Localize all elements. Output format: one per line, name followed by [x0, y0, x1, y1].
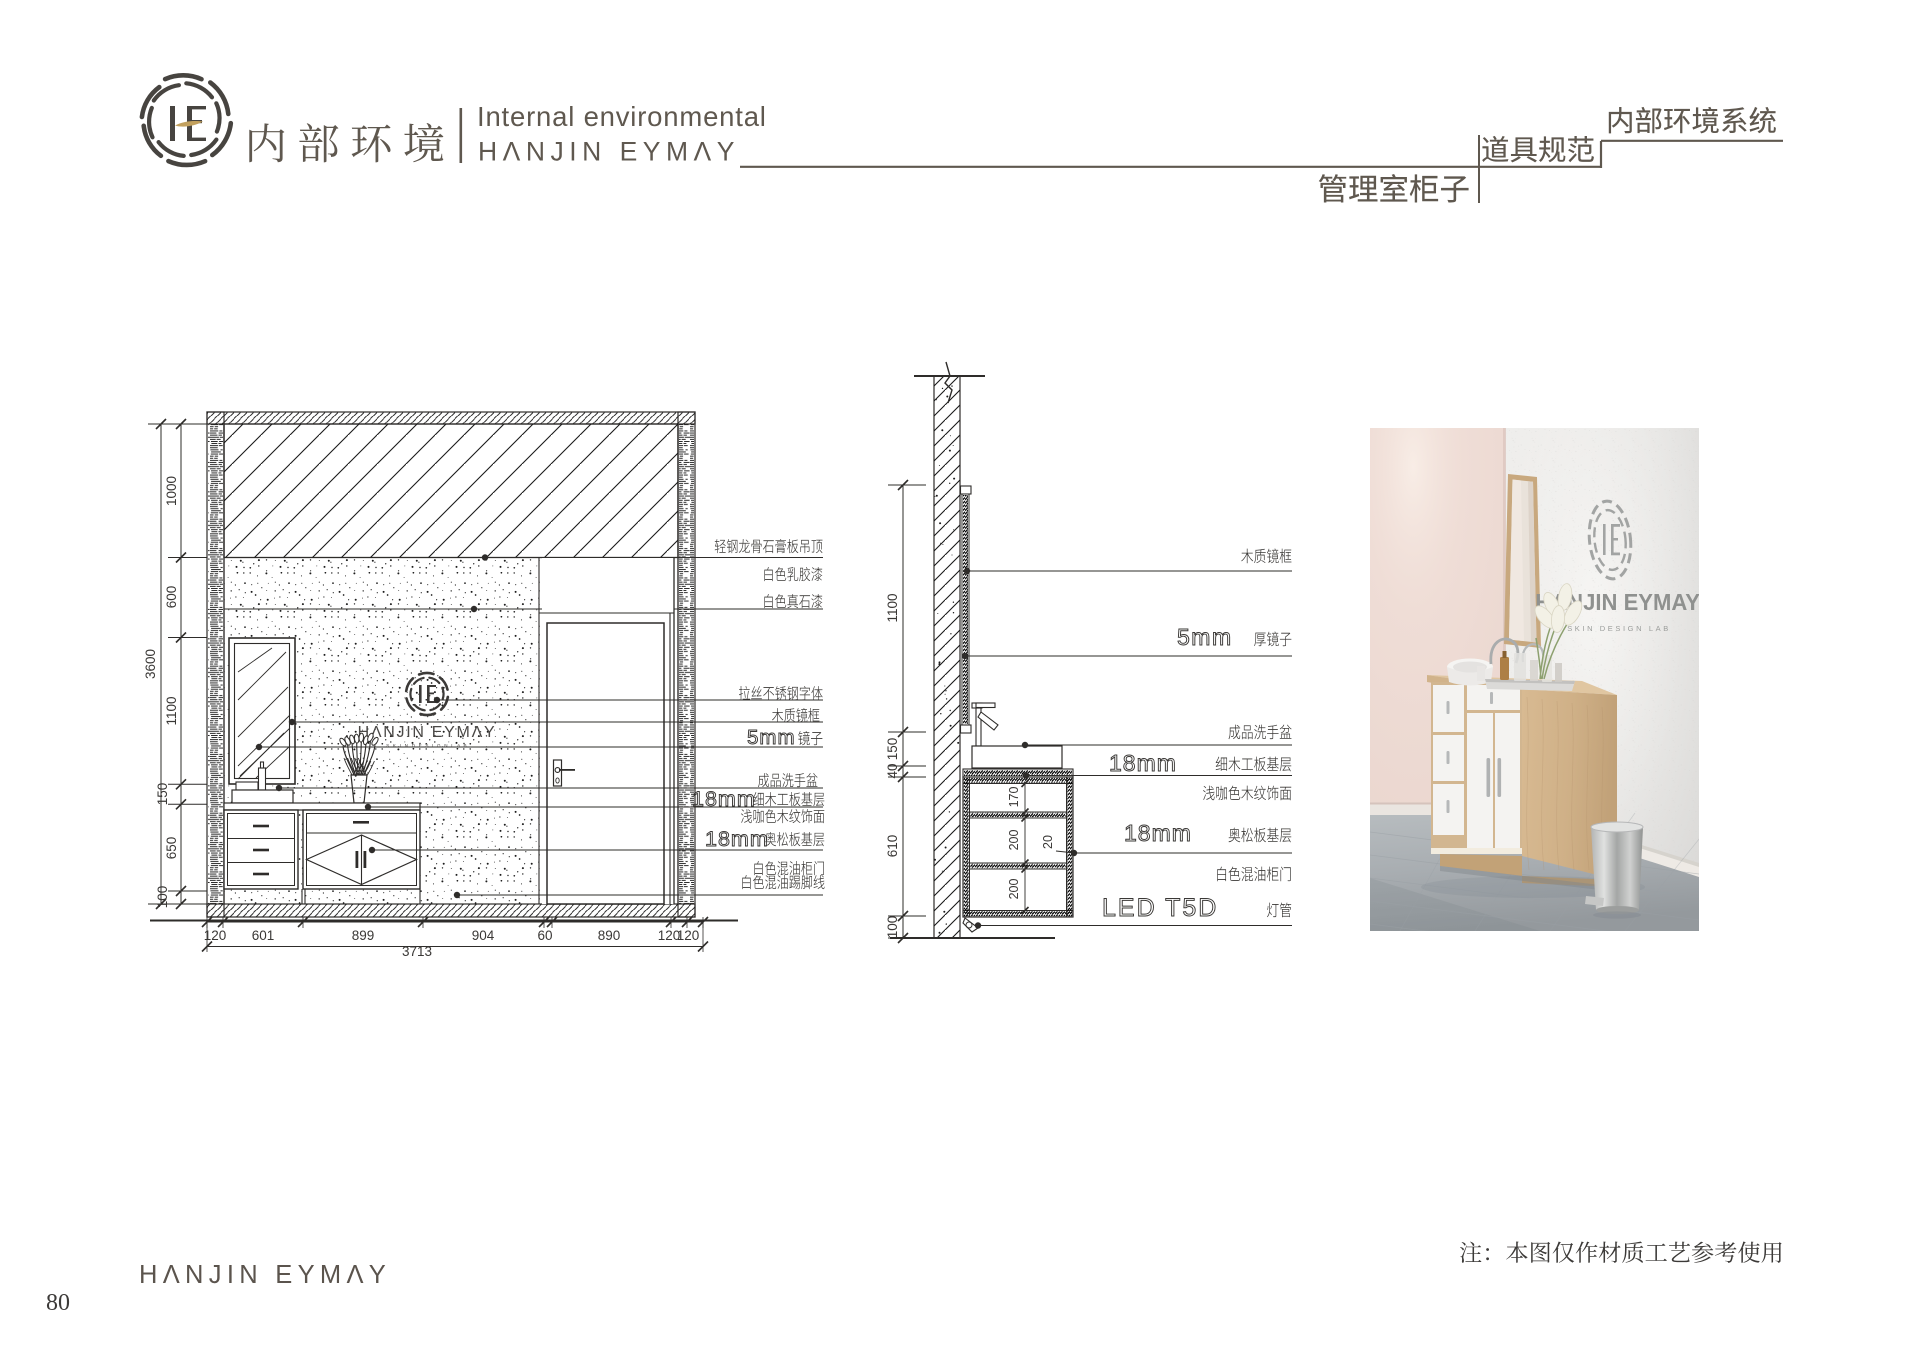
- svg-text:HΛNJIN EYMΛY: HΛNJIN EYMΛY: [139, 1261, 391, 1289]
- svg-text:120: 120: [204, 928, 227, 943]
- svg-text:3713: 3713: [402, 944, 432, 959]
- svg-text:100: 100: [885, 916, 900, 939]
- svg-text:3600: 3600: [143, 649, 158, 679]
- svg-text:1100: 1100: [164, 696, 179, 725]
- svg-text:HΛNJIN EYMΛY: HΛNJIN EYMΛY: [478, 137, 740, 167]
- svg-text:40: 40: [885, 763, 900, 778]
- svg-text:18mm: 18mm: [1124, 820, 1192, 846]
- svg-text:200: 200: [1007, 830, 1021, 851]
- svg-text:1000: 1000: [164, 476, 179, 506]
- svg-text:20: 20: [1041, 835, 1055, 849]
- svg-text:120: 120: [677, 928, 700, 943]
- svg-text:5mm: 5mm: [1177, 624, 1233, 650]
- svg-text:60: 60: [537, 928, 552, 943]
- svg-text:600: 600: [164, 586, 179, 609]
- svg-text:18mm: 18mm: [1109, 750, 1177, 776]
- svg-text:SKIN DESIGN LAB: SKIN DESIGN LAB: [1567, 624, 1671, 633]
- svg-text:Internal environmental: Internal environmental: [477, 101, 767, 132]
- svg-text:200: 200: [1007, 879, 1021, 900]
- svg-text:899: 899: [352, 928, 375, 943]
- svg-text:18mm: 18mm: [692, 787, 756, 811]
- svg-text:904: 904: [472, 928, 495, 943]
- svg-text:18mm: 18mm: [705, 827, 769, 851]
- svg-text:150: 150: [155, 783, 170, 806]
- svg-text:610: 610: [885, 835, 900, 858]
- svg-text:650: 650: [164, 837, 179, 860]
- svg-text:100: 100: [155, 886, 170, 909]
- svg-text:LED T5D: LED T5D: [1102, 894, 1218, 922]
- svg-text:1100: 1100: [885, 593, 900, 622]
- svg-text:601: 601: [252, 928, 275, 943]
- svg-text:890: 890: [598, 928, 621, 943]
- svg-text:80: 80: [46, 1290, 70, 1316]
- svg-text:150: 150: [885, 738, 900, 761]
- svg-text:5mm: 5mm: [747, 726, 796, 749]
- svg-text:170: 170: [1007, 787, 1021, 808]
